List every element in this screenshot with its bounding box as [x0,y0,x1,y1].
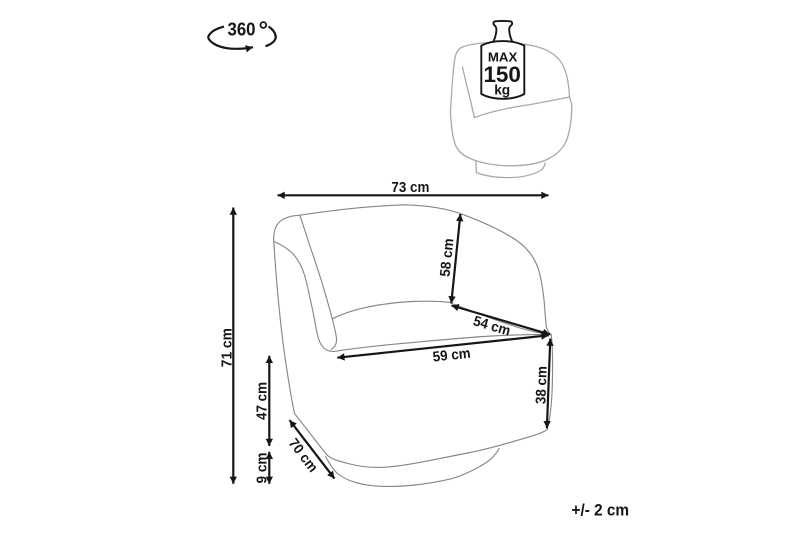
svg-text:+/- 2 cm: +/- 2 cm [572,500,630,519]
svg-text:kg: kg [494,82,510,98]
svg-text:47 cm: 47 cm [255,382,271,420]
svg-text:9 cm: 9 cm [255,453,271,484]
svg-text:360: 360 [228,20,256,40]
svg-text:38 cm: 38 cm [533,366,550,405]
svg-text:71 cm: 71 cm [220,328,236,367]
svg-text:59 cm: 59 cm [432,346,471,366]
svg-text:70 cm: 70 cm [285,436,321,476]
svg-text:73 cm: 73 cm [391,180,429,196]
